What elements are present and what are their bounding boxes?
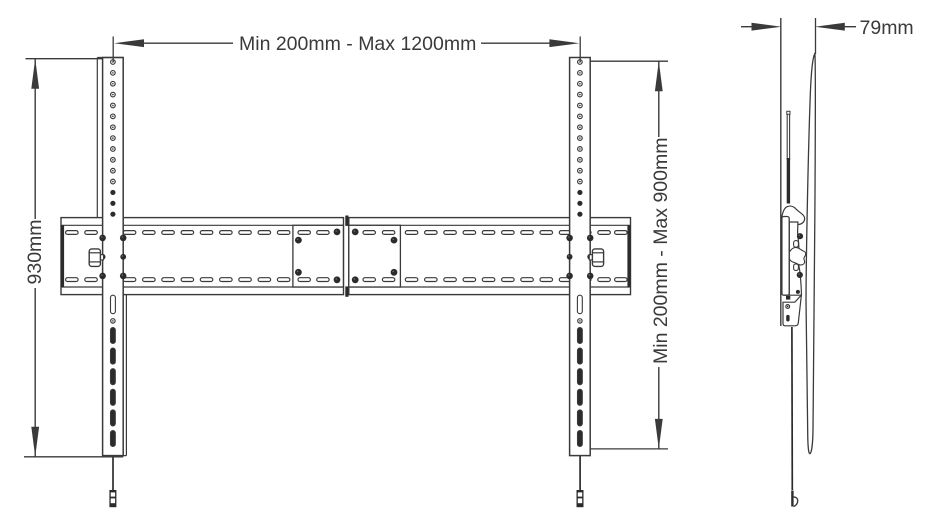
svg-text:79mm: 79mm xyxy=(860,17,914,39)
svg-text:930mm: 930mm xyxy=(24,219,46,284)
svg-text:Min 200mm - Max 1200mm: Min 200mm - Max 1200mm xyxy=(239,33,476,55)
svg-text:Min 200mm - Max 900mm: Min 200mm - Max 900mm xyxy=(650,138,672,364)
